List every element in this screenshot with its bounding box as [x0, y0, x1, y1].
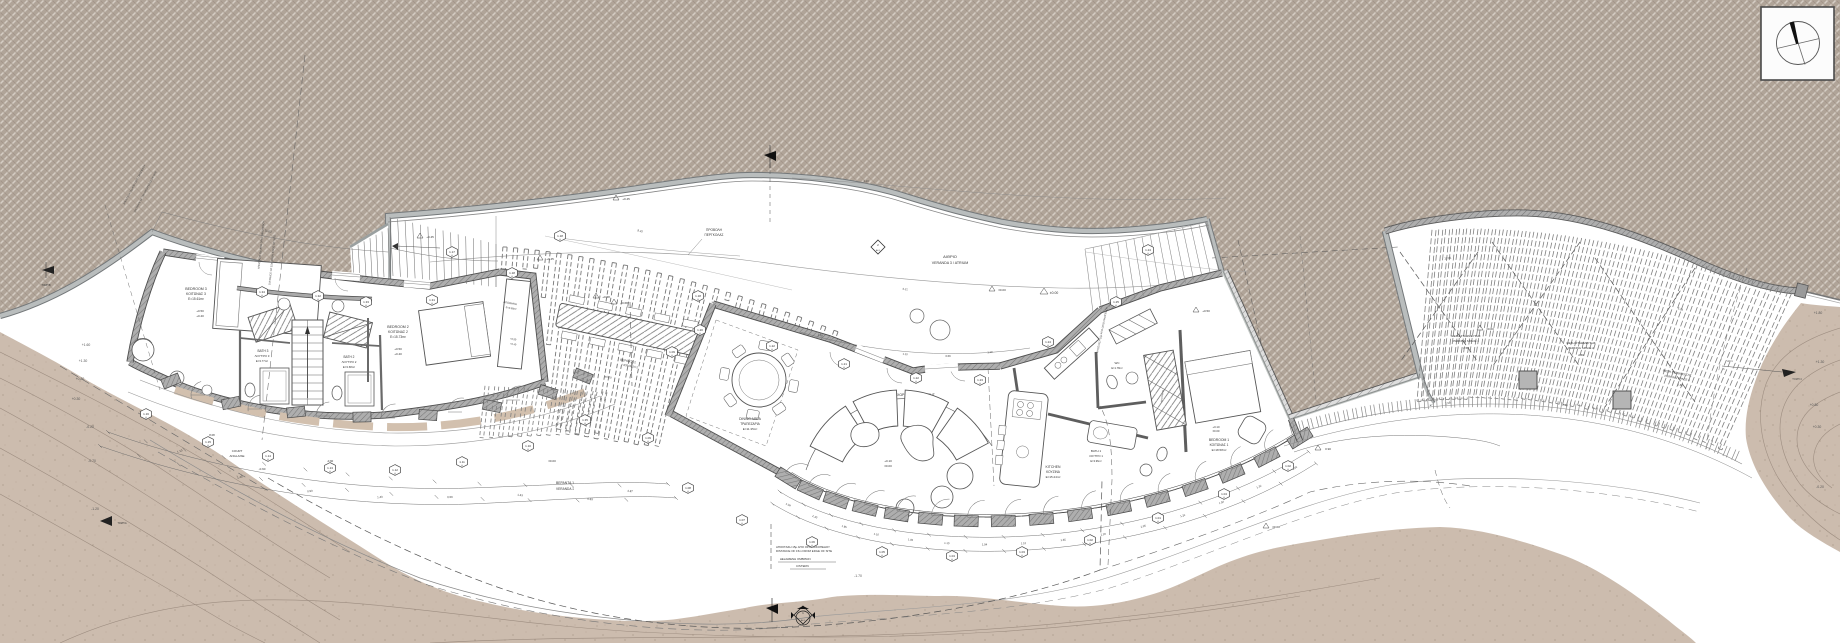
svg-text:1.17: 1.17	[449, 250, 455, 254]
svg-text:ΛΟΥΤΡΟ 1: ΛΟΥΤΡΟ 1	[1089, 454, 1103, 458]
svg-text:-0.60: -0.60	[259, 467, 266, 471]
svg-text:1.10: 1.10	[987, 350, 993, 355]
svg-text:E=15.73m²: E=15.73m²	[390, 335, 406, 339]
svg-text:1.22: 1.22	[769, 344, 775, 348]
svg-text:+0.50: +0.50	[1202, 309, 1210, 313]
svg-text:+1.80: +1.80	[1814, 311, 1823, 315]
svg-text:VERANDA 3 / ATRIUM: VERANDA 3 / ATRIUM	[932, 261, 968, 265]
svg-text:PARKING SPACE 2: PARKING SPACE 2	[1568, 346, 1594, 350]
svg-text:ΤΡΑΠΕΖΑΡΙΑ: ΤΡΑΠΕΖΑΡΙΑ	[740, 422, 760, 426]
svg-text:8.08: 8.08	[209, 433, 215, 437]
svg-text:E=18.58m²: E=18.58m²	[1212, 448, 1227, 452]
svg-text:1.05: 1.05	[908, 537, 914, 542]
svg-text:1.43: 1.43	[517, 493, 523, 497]
svg-text:±0.00: ±0.00	[884, 464, 892, 468]
svg-text:1.21: 1.21	[841, 362, 847, 366]
svg-text:1.10: 1.10	[902, 352, 908, 356]
svg-text:1.10: 1.10	[944, 541, 950, 545]
svg-text:ΚΟΙΤΩΝΑΣ 1: ΚΟΙΤΩΝΑΣ 1	[1210, 443, 1229, 447]
svg-text:0.50: 0.50	[447, 495, 453, 499]
svg-text:1.11: 1.11	[459, 460, 465, 464]
svg-text:+0.30: +0.30	[72, 397, 81, 401]
svg-text:1.04: 1.04	[949, 554, 955, 558]
svg-text:2.73: 2.73	[1562, 403, 1568, 407]
svg-text:0.69: 0.69	[945, 354, 951, 358]
svg-text:±0.00: ±0.00	[1213, 429, 1220, 433]
svg-text:-0.20: -0.20	[1816, 485, 1824, 489]
svg-text:1.33: 1.33	[363, 300, 369, 304]
svg-text:1.16: 1.16	[143, 412, 149, 416]
svg-text:CISTERN: CISTERN	[796, 564, 809, 568]
svg-text:ΠΕΡΓΚΟΛΑΣ: ΠΕΡΓΚΟΛΑΣ	[705, 233, 724, 237]
svg-text:1.04: 1.04	[982, 542, 988, 546]
svg-text:COURT: COURT	[232, 449, 243, 453]
svg-text:ΛΟΥΤΡΟ 3: ΛΟΥΤΡΟ 3	[255, 354, 270, 358]
svg-text:1.02: 1.02	[1087, 538, 1093, 542]
svg-text:ANGLAISE: ANGLAISE	[229, 454, 244, 458]
svg-text:0.90: 0.90	[1325, 447, 1331, 451]
svg-text:1.02: 1.02	[1285, 464, 1291, 468]
svg-text:+0.10: +0.10	[884, 459, 892, 463]
svg-text:1.22: 1.22	[913, 376, 919, 380]
svg-text:+1.60: +1.60	[82, 343, 91, 347]
svg-text:1.18: 1.18	[557, 234, 563, 238]
svg-text:ΘΕΣΗ ΣΤΑΘΜΕΥΣΗΣ: ΘΕΣΗ ΣΤΑΘΜΕΥΣΗΣ	[1451, 334, 1480, 338]
svg-text:1.07: 1.07	[739, 518, 745, 522]
svg-text:1.32: 1.32	[315, 294, 321, 298]
svg-text:1.34: 1.34	[259, 290, 265, 294]
svg-text:+0.80: +0.80	[76, 377, 85, 381]
svg-text:ΔΕΞΑΜΕΝΗ ΟΜΒΡΙΩΝ: ΔΕΞΑΜΕΝΗ ΟΜΒΡΙΩΝ	[780, 557, 811, 561]
svg-text:ΚΟΙΤΩΝΑΣ 2: ΚΟΙΤΩΝΑΣ 2	[388, 330, 408, 334]
svg-text:ΠΡΟΒΟΛΗ: ΠΡΟΒΟΛΗ	[706, 228, 723, 232]
svg-text:ΤΟΜΗ Α: ΤΟΜΗ Α	[117, 522, 127, 525]
svg-text:1.04: 1.04	[1221, 492, 1227, 496]
svg-text:E=15.61m²: E=15.61m²	[188, 297, 204, 301]
svg-text:-0.20: -0.20	[86, 425, 94, 429]
svg-text:2.50: 2.50	[1578, 353, 1584, 357]
svg-text:0.63: 0.63	[587, 497, 593, 502]
svg-text:1.10: 1.10	[525, 444, 531, 448]
svg-text:+0.68: +0.68	[620, 301, 628, 305]
svg-text:ΚΟΥΖΙΝΑ: ΚΟΥΖΙΝΑ	[1046, 470, 1061, 474]
svg-text:1.15: 1.15	[205, 440, 211, 444]
svg-text:1.03: 1.03	[1019, 550, 1025, 554]
svg-text:+1.30: +1.30	[79, 359, 88, 363]
svg-text:1.18: 1.18	[695, 294, 701, 298]
svg-text:ΤΟΜΗ Β: ΤΟΜΗ Β	[41, 284, 51, 287]
svg-text:PARKING SPACE 1: PARKING SPACE 1	[1453, 339, 1479, 343]
svg-text:1.13: 1.13	[327, 466, 333, 470]
svg-text:ΛΟΥΤΡΟ 2: ΛΟΥΤΡΟ 2	[342, 360, 357, 364]
svg-text:1.18: 1.18	[509, 271, 515, 275]
svg-text:1.08: 1.08	[685, 486, 691, 490]
svg-text:+0.50: +0.50	[196, 309, 204, 313]
svg-text:1.13: 1.13	[863, 179, 869, 183]
svg-text:E=1.78m²: E=1.78m²	[1111, 366, 1122, 370]
svg-text:1.05: 1.05	[879, 550, 885, 554]
svg-text:2.50: 2.50	[1463, 346, 1469, 350]
svg-text:ΑΙΘΡΙΟ: ΑΙΘΡΙΟ	[943, 254, 957, 259]
svg-text:+0.40: +0.40	[196, 314, 204, 318]
svg-text:1.65: 1.65	[1060, 538, 1066, 543]
svg-text:BEDROOM 1: BEDROOM 1	[1209, 438, 1229, 442]
svg-text:E=3.96m²: E=3.96m²	[1090, 459, 1101, 463]
svg-text:4.87: 4.87	[627, 489, 633, 494]
svg-text:±0.00: ±0.00	[1050, 291, 1059, 295]
svg-text:E=3.68m²: E=3.68m²	[343, 365, 355, 369]
svg-text:Α3.1: Α3.1	[1727, 359, 1733, 363]
svg-text:BEDROOM 2: BEDROOM 2	[387, 325, 409, 329]
svg-text:-0.70: -0.70	[88, 459, 96, 463]
svg-text:±0.00: ±0.00	[998, 288, 1006, 292]
svg-text:1.01: 1.01	[1155, 516, 1161, 520]
svg-text:E=15.24m²: E=15.24m²	[1046, 475, 1061, 479]
svg-text:1.12: 1.12	[392, 468, 398, 472]
svg-text:BATH 3: BATH 3	[258, 349, 269, 353]
svg-text:±0.00: ±0.00	[1486, 327, 1494, 331]
svg-text:1.24: 1.24	[1145, 248, 1151, 252]
svg-text:DISTANCE OF 15m FROM EDGE OF S: DISTANCE OF 15m FROM EDGE OF SITE	[776, 549, 832, 553]
svg-text:DINING AREA: DINING AREA	[739, 417, 762, 421]
svg-text:+0.58: +0.58	[602, 295, 610, 299]
svg-text:+0.30: +0.30	[1813, 425, 1822, 429]
svg-text:+0.50: +0.50	[394, 347, 402, 351]
svg-text:1.43: 1.43	[377, 495, 383, 499]
svg-text:1.20: 1.20	[697, 328, 703, 332]
svg-text:1.09: 1.09	[669, 350, 675, 354]
svg-text:E=3.77m²: E=3.77m²	[256, 359, 268, 363]
svg-text:1.23: 1.23	[977, 378, 983, 382]
svg-text:VERANDA 1: VERANDA 1	[556, 487, 574, 491]
svg-text:1.06: 1.06	[809, 540, 815, 544]
svg-text:E=11.35m²: E=11.35m²	[743, 427, 758, 431]
svg-text:1.35: 1.35	[582, 418, 588, 422]
svg-text:+0.45: +0.45	[546, 257, 554, 261]
svg-text:1.25: 1.25	[1113, 300, 1119, 304]
svg-text:1.14: 1.14	[265, 454, 271, 458]
svg-text:+1.30: +1.30	[1816, 360, 1825, 364]
svg-text:WC: WC	[1115, 361, 1121, 365]
svg-text:+0.45: +0.45	[622, 197, 630, 201]
svg-text:0.90: 0.90	[307, 489, 313, 494]
svg-text:-1.70: -1.70	[854, 574, 862, 578]
svg-text:±0.00: ±0.00	[548, 459, 556, 463]
svg-text:1.10: 1.10	[1021, 541, 1027, 545]
svg-text:BATH 1: BATH 1	[1091, 449, 1102, 453]
svg-text:±0.00: ±0.00	[1272, 525, 1280, 529]
svg-text:ΚΟΙΤΩΝΑΣ 3: ΚΟΙΤΩΝΑΣ 3	[186, 292, 206, 296]
svg-text:1.09: 1.09	[645, 436, 651, 440]
svg-text:KITCHEN: KITCHEN	[1046, 465, 1061, 469]
svg-text:+0.40: +0.40	[394, 352, 402, 356]
svg-text:-1.20: -1.20	[91, 507, 99, 511]
svg-text:ΤΟΜΗ 4: ΤΟΜΗ 4	[1792, 378, 1802, 381]
svg-text:BEDROOM 3: BEDROOM 3	[185, 287, 207, 291]
svg-text:+0.45: +0.45	[426, 235, 434, 239]
svg-text:1.24: 1.24	[1045, 340, 1051, 344]
svg-text:ΘΕΣΗ ΣΤΑΘΜΕΥΣΗΣ: ΘΕΣΗ ΣΤΑΘΜΕΥΣΗΣ	[1566, 341, 1595, 345]
svg-text:1.31: 1.31	[429, 298, 435, 302]
svg-text:+0.80: +0.80	[1810, 403, 1819, 407]
svg-text:BATH 2: BATH 2	[344, 355, 355, 359]
